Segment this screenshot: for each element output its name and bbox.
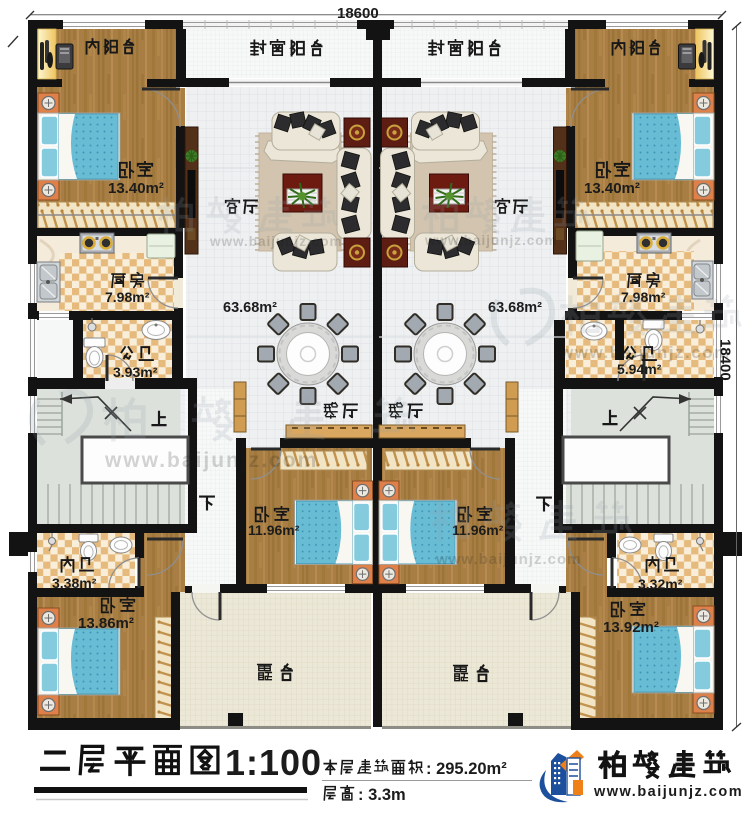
svg-text:1:100: 1:100 [225,742,322,783]
svg-text:13.40m²: 13.40m² [584,180,640,197]
svg-text:www.baijunjz.com: www.baijunjz.com [209,234,343,249]
svg-text:5.94m²: 5.94m² [617,361,662,377]
svg-text:11.96m²: 11.96m² [248,522,300,538]
svg-text:18600: 18600 [337,5,379,22]
svg-text:www.baijunjz.com: www.baijunjz.com [424,233,558,248]
svg-text:3.32m²: 3.32m² [638,576,683,592]
svg-text:13.86m²: 13.86m² [78,615,134,632]
svg-text:: 3.3m: : 3.3m [358,786,406,804]
svg-text:www.baijunjz.com: www.baijunjz.com [435,551,581,568]
svg-text:13.40m²: 13.40m² [108,180,164,197]
svg-text:www.baijunjz.com: www.baijunjz.com [593,784,743,800]
svg-text:: 295.20m²: : 295.20m² [426,760,507,778]
svg-text:3.93m²: 3.93m² [113,364,158,380]
svg-text:13.92m²: 13.92m² [603,619,659,636]
svg-text:63.68m²: 63.68m² [223,300,277,316]
svg-text:3.38m²: 3.38m² [52,575,97,591]
svg-text:7.98m²: 7.98m² [105,289,150,305]
svg-text:www.baijunjz.com: www.baijunjz.com [104,449,318,472]
svg-text:www.baijunjz.com: www.baijunjz.com [559,343,731,362]
